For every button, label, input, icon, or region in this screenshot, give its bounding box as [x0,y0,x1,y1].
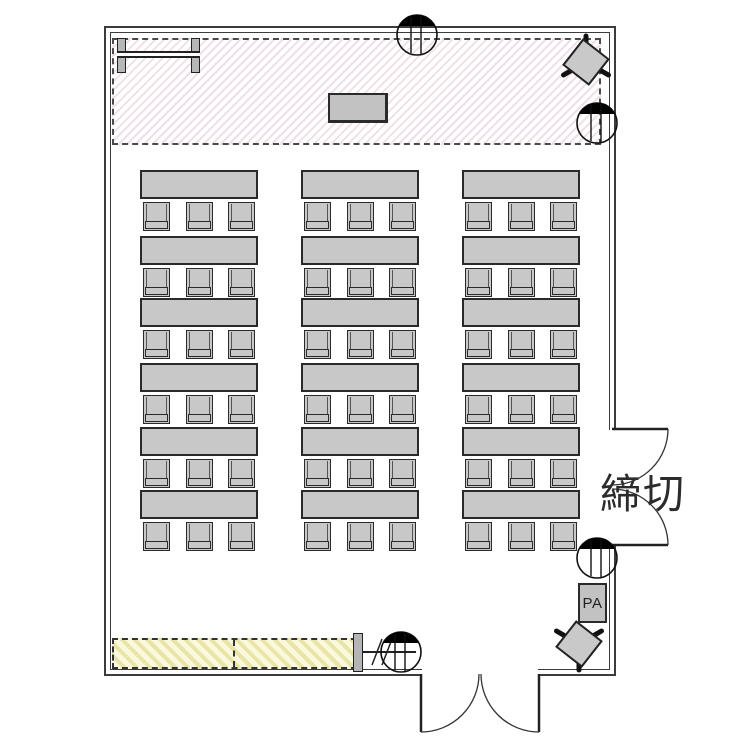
table [462,363,580,392]
chair [228,395,255,424]
chair [347,268,374,297]
table [301,427,419,456]
chair [186,268,213,297]
chair [550,330,577,359]
chair [143,268,170,297]
stand-speaker-icon-bottom-right [544,609,614,679]
chair [186,459,213,488]
chair [389,522,416,551]
table [301,170,419,199]
chair [389,330,416,359]
chair [389,202,416,231]
table [301,298,419,327]
partition-post [353,633,363,672]
chair [228,202,255,231]
chair [347,522,374,551]
chair [389,459,416,488]
chair [186,522,213,551]
table [462,490,580,519]
table [140,490,258,519]
chair [550,202,577,231]
chair [508,330,535,359]
wall-speaker-icon-top [394,12,440,58]
chair [508,395,535,424]
chair [508,268,535,297]
chair [143,459,170,488]
table [140,170,258,199]
wall-speaker-icon-bottom [378,629,424,675]
table [140,427,258,456]
table [140,236,258,265]
table [462,170,580,199]
chair [389,395,416,424]
chair [304,268,331,297]
chair [228,522,255,551]
chair [228,268,255,297]
table [301,490,419,519]
chair [550,522,577,551]
chair [347,330,374,359]
chair [186,330,213,359]
chair [143,202,170,231]
chair [465,522,492,551]
chair [465,459,492,488]
chair [508,522,535,551]
bottom-door-opening [422,663,538,681]
table [140,298,258,327]
table [462,298,580,327]
chair [304,202,331,231]
chair [347,202,374,231]
chair [304,522,331,551]
table [140,363,258,392]
chair [143,522,170,551]
whiteboard-icon [117,51,200,58]
chair [508,459,535,488]
wall-speaker-icon-right-upper [574,100,620,146]
chair [389,268,416,297]
bench-divider [233,640,235,667]
chair [465,202,492,231]
table [462,236,580,265]
chair [186,202,213,231]
chair [228,459,255,488]
chair [347,395,374,424]
table [301,236,419,265]
closed-label: 締切 [600,472,686,517]
stand-speaker-icon-top-right [551,27,621,97]
chair [508,202,535,231]
chair [304,330,331,359]
chair [347,459,374,488]
floor-plan: PA 締切 [0,0,750,750]
table [462,427,580,456]
side-bench [112,638,357,669]
chair [550,268,577,297]
chair [550,459,577,488]
chair [465,268,492,297]
chair [228,330,255,359]
chair [143,330,170,359]
chair [550,395,577,424]
podium-table [328,93,388,123]
chair [465,330,492,359]
chair [304,395,331,424]
chair [186,395,213,424]
chair [465,395,492,424]
chair [304,459,331,488]
chair [143,395,170,424]
table [301,363,419,392]
wall-speaker-icon-right-lower [574,535,620,581]
